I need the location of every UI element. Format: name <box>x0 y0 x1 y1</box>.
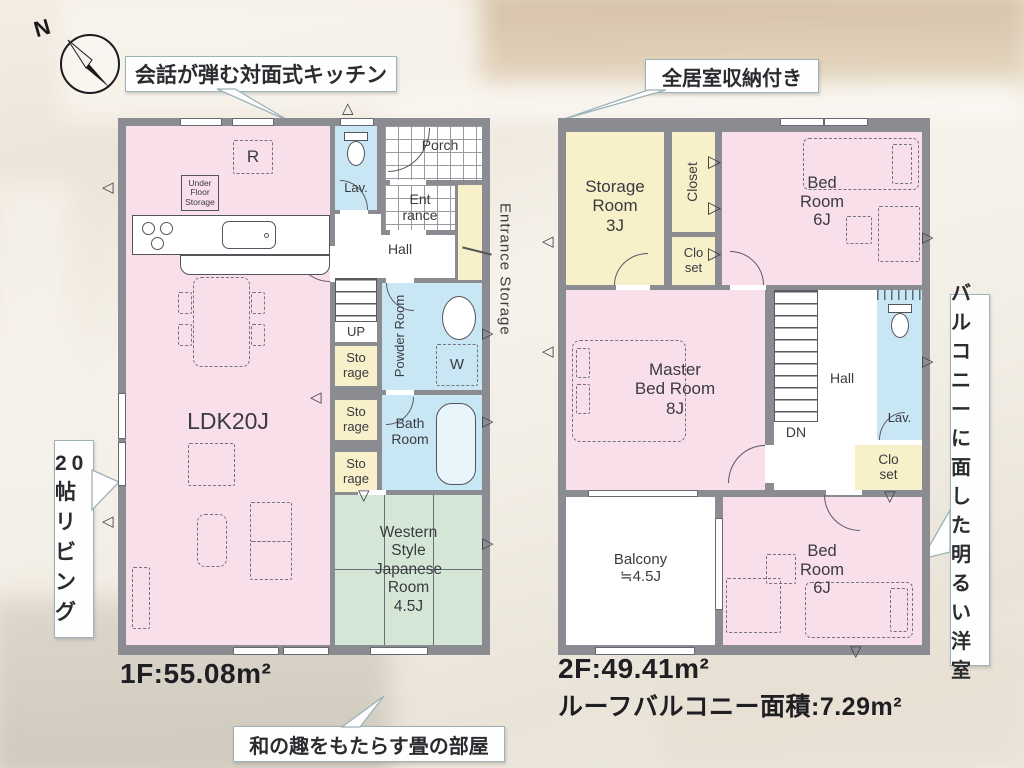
vent-triangle-icon: △ <box>342 101 354 116</box>
room-label-hall-2f: Hall <box>816 370 868 388</box>
room-label-lavatory-2f: Lav. <box>877 410 922 426</box>
floor2-area-label: 2F:49.41m² <box>558 653 709 685</box>
furniture-tv-board <box>132 567 150 629</box>
room-label-storage: Sto rage <box>335 452 377 492</box>
furniture-cabinet <box>250 502 292 542</box>
room-label-closet-c: Clo set <box>855 446 922 488</box>
window <box>118 393 126 439</box>
window <box>233 647 279 655</box>
furniture-chair <box>178 324 192 346</box>
room-label-porch: Porch <box>398 136 482 156</box>
door-opening <box>730 285 766 290</box>
room-label-storage-3j: Storage Room 3J <box>566 170 664 242</box>
door-opening <box>390 230 426 235</box>
room-label-storage: Sto rage <box>335 346 377 386</box>
window <box>780 118 824 126</box>
door-opening <box>880 440 906 445</box>
vent-triangle-icon: ◁ <box>102 514 114 529</box>
room-label-up: UP <box>335 322 377 342</box>
furniture-pillow <box>892 144 912 184</box>
floor2-plan: ▷ ▷ ▷ ▽ ◁ ◁ ▷ ▷ ▽ Storage Room 3J Closet… <box>558 118 930 655</box>
room-label-closet-small: Clo set <box>672 240 715 282</box>
door-opening <box>616 285 650 290</box>
room-label-balcony: Balcony ≒4.5J <box>566 546 715 592</box>
window <box>232 118 274 126</box>
vent-triangle-icon: ◁ <box>542 344 554 359</box>
room-label-ldk: LDK20J <box>126 406 330 436</box>
window <box>824 118 868 126</box>
stairs-up <box>335 278 377 322</box>
window <box>340 118 374 126</box>
furniture-chair <box>178 292 192 314</box>
bathtub <box>436 403 476 485</box>
floor1-area-label: 1F:55.08m² <box>120 658 271 690</box>
background-photo-shape <box>0 180 70 480</box>
folding-door-icon: ▽ <box>884 489 896 504</box>
room-label-powder: Powder Room <box>382 296 418 376</box>
window <box>370 647 428 655</box>
door-opening <box>340 210 368 214</box>
room-label-bedroom-se: Bed Room 6J <box>772 538 872 602</box>
room-entrance-storage <box>458 185 482 280</box>
door-opening <box>386 390 414 395</box>
compass-north-icon: N <box>24 8 124 100</box>
vent-triangle-icon: ▽ <box>850 644 862 659</box>
floor1-plan: R Under Floor Storage ◁ ◁ △ ▷ ▷ ▷ <box>118 118 490 655</box>
vent-triangle-icon: ▷ <box>482 536 494 551</box>
callout-kitchen: 会話が弾む対面式キッチン <box>125 56 397 92</box>
door-opening <box>390 180 426 185</box>
callout-tatami-pointer <box>332 695 390 728</box>
callout-living-pointer <box>91 468 121 514</box>
under-floor-storage-label: Under Floor Storage <box>181 175 219 211</box>
toilet-bowl <box>891 313 909 338</box>
toilet-tank <box>888 304 912 313</box>
window <box>283 647 329 655</box>
callout-storage-pointer <box>556 89 670 121</box>
vent-triangle-icon: ◁ <box>102 180 114 195</box>
furniture-coffee-table <box>188 443 235 486</box>
callout-all-rooms-storage: 全居室収納付き <box>645 59 819 93</box>
furniture-sofa <box>197 514 227 567</box>
furniture-pillow <box>576 348 590 378</box>
room-label-dn: DN <box>774 424 818 442</box>
stove-burner <box>142 222 155 235</box>
stairs-down <box>774 290 818 422</box>
roof-balcony-area-label: ルーフバルコニー面積:7.29m² <box>558 687 902 723</box>
furniture-chair <box>251 324 265 346</box>
furniture-chair <box>251 292 265 314</box>
door-opening <box>765 445 774 483</box>
vent-triangle-icon: ◁ <box>542 234 554 249</box>
vent-triangle-icon: ▷ <box>922 230 934 245</box>
lavatory-shelf-hatch <box>877 290 922 300</box>
floor-plan-image: N 会話が弾む対面式キッチン 全居室収納付き 20帖リビング バルコニーに面した… <box>0 0 1024 768</box>
furniture-dining-table <box>193 277 250 367</box>
refrigerator-label: R <box>233 140 273 174</box>
compass-n-label: N <box>31 14 53 42</box>
callout-living: 20帖リビング <box>54 440 94 638</box>
callout-balcony-room: バルコニーに面した明るい洋室 <box>950 294 990 666</box>
entrance-storage-label: Entrance Storage <box>492 172 516 367</box>
door-opening <box>330 246 335 282</box>
window <box>118 442 126 486</box>
folding-door-icon: ◁ <box>310 390 322 405</box>
room-ldk <box>126 126 330 645</box>
room-label-storage: Sto rage <box>335 400 377 440</box>
toilet-bowl <box>347 141 365 166</box>
room-label-bath: Bath Room <box>384 414 436 450</box>
room-label-hall: Hall <box>370 240 430 260</box>
room-label-lavatory: Lav. <box>335 180 377 196</box>
stove-burner <box>160 222 173 235</box>
toilet-tank <box>344 132 368 141</box>
sink-drain <box>264 233 269 238</box>
furniture-pillow <box>576 384 590 414</box>
room-label-japanese: Western Style Japanese Room 4.5J <box>341 508 476 632</box>
room-label-master: Master Bed Room 8J <box>605 358 745 420</box>
kitchen-bar-counter <box>180 255 330 275</box>
window <box>180 118 222 126</box>
furniture-pillow <box>890 588 908 632</box>
powder-sink <box>442 296 476 340</box>
callout-tatami: 和の趣をもたらす畳の部屋 <box>233 726 505 762</box>
vent-triangle-icon: ▷ <box>482 414 494 429</box>
furniture-desk <box>878 206 920 262</box>
room-label-closet: Closet <box>675 142 711 222</box>
stove-burner <box>151 237 164 250</box>
room-label-entrance: Ent rance <box>385 188 455 228</box>
washer-label: W <box>436 344 478 386</box>
furniture-cabinet <box>250 541 292 580</box>
room-label-bedroom-ne: Bed Room 6J <box>772 170 872 234</box>
vent-triangle-icon: ▷ <box>922 354 934 369</box>
window <box>715 518 723 610</box>
window <box>588 490 698 497</box>
